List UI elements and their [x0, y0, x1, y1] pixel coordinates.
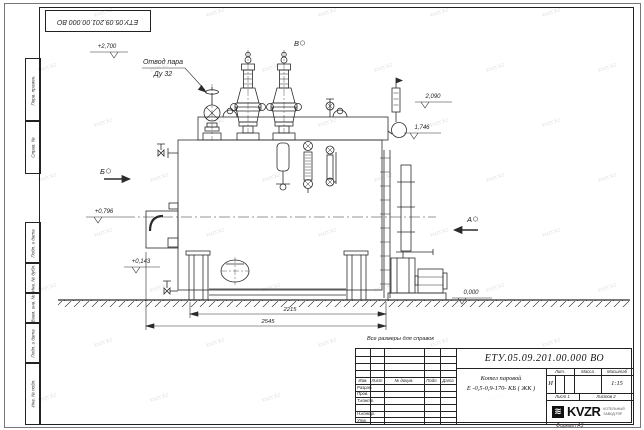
tb-row-tkontr: Т.контр. [357, 399, 384, 404]
svg-text:+0,796: +0,796 [95, 209, 114, 215]
dimension-2545: 2545 [146, 252, 386, 330]
ladder [380, 150, 390, 298]
boiler-body [178, 140, 382, 290]
support-legs [186, 251, 368, 300]
svg-text:Б: Б [100, 167, 105, 176]
svg-text:1,746: 1,746 [414, 125, 430, 131]
svg-text:А: А [466, 215, 472, 224]
svg-text:Ду 32: Ду 32 [153, 71, 172, 78]
logo-word: KVZR [567, 404, 600, 419]
format-note: Формат А3 [556, 423, 583, 429]
burner-box [146, 203, 178, 248]
ground-line [58, 300, 630, 307]
lifting-eye-right [333, 108, 347, 117]
tb-scale: 1:15 [601, 380, 633, 387]
gauge-glass-1 [304, 142, 313, 194]
gauge-glass-2 [326, 146, 336, 186]
elevation-2090: 2,090 [415, 94, 452, 108]
view-label-b: Б [100, 167, 130, 183]
tb-header-massa: Масса [574, 370, 601, 375]
water-column-cylinder [276, 143, 290, 190]
tb-header-data: Дата [440, 379, 456, 384]
tb-doc-number: ЕТУ.05.09.201.00.000 ВО [456, 353, 633, 364]
front-wall-valve [157, 144, 178, 158]
tb-row-nkontr: Н.контр. [357, 412, 384, 417]
tb-name-line2: Е -0,5-0,9-170- КБ ( ЖК ) [456, 385, 546, 392]
svg-text:Отвод пара: Отвод пара [143, 58, 183, 66]
title-block: Изм. Лист № докум. Подп. Дата Разраб. Пр… [355, 348, 632, 423]
rear-duct [397, 165, 415, 251]
view-label-a: А [454, 215, 478, 234]
svg-text:+2,700: +2,700 [98, 44, 117, 50]
tb-header-masshtab: Масштаб [601, 370, 633, 375]
tb-row-prov: Пров. [357, 392, 384, 397]
steam-outlet-callout: Отвод пара Ду 32 [142, 58, 206, 92]
svg-text:2215: 2215 [283, 307, 298, 313]
tb-header-list: Лист [370, 379, 384, 384]
pressure-gauge [388, 78, 407, 138]
tb-row-razrab: Разраб. [357, 386, 384, 391]
shelf-stub-valve [326, 99, 334, 117]
tb-row-utv: Утв. [357, 419, 384, 424]
tb-list-no: Лист 1 [546, 395, 579, 400]
svg-text:В: В [294, 39, 299, 48]
logo-glyph-icon: ≋ [552, 406, 564, 418]
manufacturer-logo: ≋ KVZR КОТЕЛЬНЫЙ ЗАВОД РЗР [552, 404, 625, 419]
feed-pump-unit [388, 249, 447, 300]
elevation-1746: 1,746 [404, 125, 441, 139]
elevation-0796: +0,796 [86, 209, 124, 223]
reference-note: Все размеры для справок [367, 336, 434, 342]
view-label-v: В [294, 39, 305, 48]
logo-sub-line2: ЗАВОД РЗР [603, 412, 624, 416]
drawing-sheet: { "sheet": { "doc_number": "ЕТУ.05.09.20… [0, 0, 644, 430]
logo-sub-line1: КОТЕЛЬНЫЙ [603, 407, 624, 411]
svg-text:2,090: 2,090 [424, 94, 441, 100]
elevation-marks: +2,700 2,090 1,746 +0,796 +0,143 0,000 [86, 44, 492, 304]
svg-text:+0,143: +0,143 [132, 259, 151, 265]
tb-name-line1: Котел паровой [456, 375, 546, 382]
tb-listov: Листов 2 [579, 395, 633, 400]
drain-valve [163, 281, 178, 294]
tb-lit-value: И [546, 380, 555, 387]
svg-text:2545: 2545 [261, 319, 276, 325]
elevation-2700: +2,700 [90, 44, 128, 58]
tb-header-podp: Подп. [424, 379, 440, 384]
tb-header-ndocum: № докум. [384, 379, 424, 384]
svg-text:0,000: 0,000 [463, 290, 479, 296]
manhole [221, 257, 249, 285]
tb-header-lit: Лит. [546, 370, 574, 375]
elevation-0143: +0,143 [124, 259, 160, 273]
tb-header-izm: Изм. [356, 379, 370, 384]
